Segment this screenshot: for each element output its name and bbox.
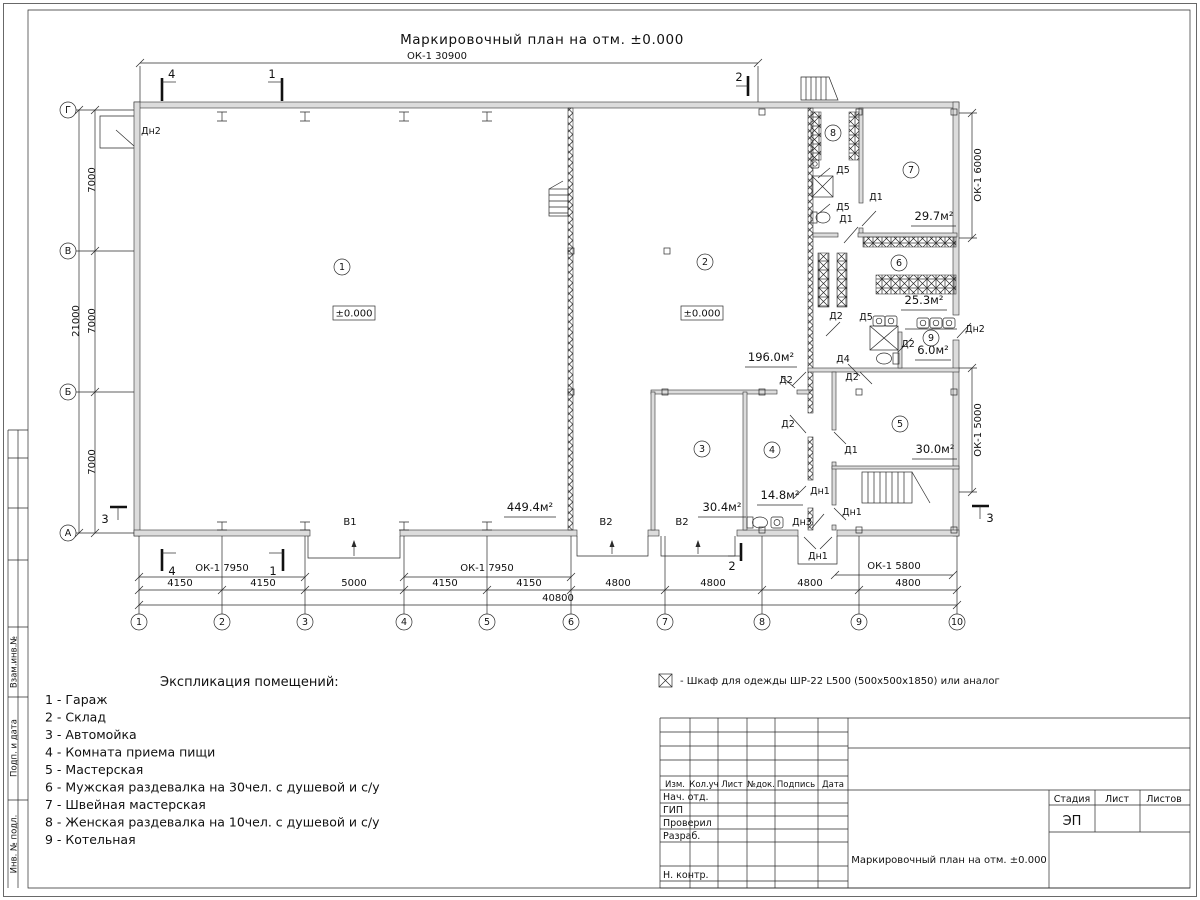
side-label-inv: Инв. № подл. (10, 815, 20, 874)
door-label: Д1 (844, 445, 857, 456)
stage-header: Листов (1146, 794, 1182, 805)
title-block-headers: Изм. Кол.уч Лист №док. Подпись Дата (665, 780, 844, 790)
note-text: - Шкаф для одежды ШР-22 L500 (500x500x18… (680, 676, 1000, 687)
axis-label: 5 (484, 617, 490, 628)
section-mark-label: 3 (986, 511, 993, 525)
dim-label: 7000 (87, 449, 98, 474)
dim-label: ОК-1 7950 (460, 563, 514, 574)
entry-porch (100, 116, 134, 148)
legend-item: 1 - Гараж (45, 692, 108, 707)
axis-label: Б (65, 387, 72, 398)
dim-label: 4800 (797, 578, 822, 589)
legend-item: 2 - Склад (45, 710, 106, 725)
door-label: Д5 (836, 165, 849, 176)
axis-label: 2 (219, 617, 225, 628)
plan-title: Маркировочный план на отм. ±0.000 (400, 32, 684, 48)
dim-label: ОК-1 5000 (973, 403, 984, 457)
axis-label: 3 (302, 617, 308, 628)
area-label: 29.7м² (915, 209, 954, 223)
dim-label: 4150 (516, 578, 541, 589)
dimension-labels: ОК-1 30900 ОК-1 7950 ОК-1 7950 ОК-1 5800… (71, 51, 984, 604)
dim-label: 4800 (605, 578, 630, 589)
area-label: 14.8м² (761, 488, 800, 502)
stamp-row: Н. контр. (663, 870, 709, 881)
door-label: Д2 (845, 372, 858, 383)
dimension-ticks (75, 59, 976, 609)
area-label: 30.0м² (916, 442, 955, 456)
dim-label: 4800 (700, 578, 725, 589)
dim-label: 40800 (542, 593, 574, 604)
door-label: Дн1 (810, 486, 830, 497)
door-label: Д1 (869, 192, 882, 203)
dim-label: 7000 (87, 308, 98, 333)
legend-item: 9 - Котельная (45, 832, 136, 847)
axis-label: Г (65, 105, 71, 116)
stamp-col: №док. (747, 780, 775, 790)
room-number: 2 (702, 257, 708, 268)
stamp-row: ГИП (663, 805, 683, 816)
legend-item: 7 - Швейная мастерская (45, 797, 206, 812)
area-label: 449.4м² (507, 500, 553, 514)
dim-label: ОК-1 30900 (407, 51, 467, 62)
gate-label: В2 (599, 517, 612, 528)
section-mark-label: 1 (269, 564, 276, 578)
dim-label: 4150 (250, 578, 275, 589)
legend: Экспликация помещений: 1 - Гараж 2 - Скл… (45, 675, 380, 847)
stage-header: Стадия (1054, 794, 1090, 805)
sheet-frame: Взам.инв.№ Подп. и дата Инв. № подл. (4, 4, 1197, 897)
elevation-label: ±0.000 (335, 309, 372, 320)
dim-label: 21000 (71, 305, 82, 337)
room-number: 5 (897, 419, 903, 430)
legend-item: 6 - Мужская раздевалка на 30чел. с душев… (45, 780, 380, 795)
stamp-col: Дата (822, 780, 844, 790)
section-mark-label: 3 (101, 512, 108, 526)
exterior-stair-symbol (801, 77, 838, 100)
section-mark-label: 4 (168, 67, 175, 81)
title-block: Изм. Кол.уч Лист №док. Подпись Дата Нач.… (660, 718, 1190, 888)
plan-canvas: Взам.инв.№ Подп. и дата Инв. № подл. Мар… (0, 0, 1200, 900)
door-label: Д2 (781, 419, 794, 430)
axis-bubbles-bottom: 1 2 3 4 5 6 7 8 9 10 (131, 614, 965, 630)
axis-label: 6 (568, 617, 574, 628)
gate-label: В1 (343, 517, 356, 528)
legend-item: 8 - Женская раздевалка на 10чел. с душев… (45, 815, 380, 830)
door-label: Д4 (836, 354, 849, 365)
axis-label: 7 (662, 617, 668, 628)
section-mark-label: 4 (168, 564, 175, 578)
legend-item: 5 - Мастерская (45, 762, 143, 777)
area-label: 6.0м² (917, 343, 949, 357)
door-label: Д2 (779, 375, 792, 386)
legend-item: 4 - Комната приема пищи (45, 745, 215, 760)
side-label-podp: Подп. и дата (10, 719, 20, 777)
stage-value: ЭП (1063, 814, 1082, 829)
door-label: Дн1 (808, 551, 828, 562)
dim-label: ОК-1 7950 (195, 563, 249, 574)
room-number: 4 (769, 445, 775, 456)
dim-label: ОК-1 6000 (973, 148, 984, 202)
legend-title: Экспликация помещений: (160, 675, 339, 690)
axis-label: 9 (856, 617, 862, 628)
gate-v2 (661, 536, 735, 556)
legend-item: 3 - Автомойка (45, 727, 137, 742)
locker-note: - Шкаф для одежды ШР-22 L500 (500x500x18… (659, 674, 1000, 687)
room-number: 8 (830, 128, 836, 139)
door-label: Дн3 (792, 517, 812, 528)
section-mark-label: 1 (268, 67, 275, 81)
dim-label: ОК-1 5800 (867, 561, 921, 572)
elevation-marks: ±0.000 ±0.000 (333, 306, 723, 320)
side-label-vzam: Взам.инв.№ (10, 636, 20, 688)
stamp-col: Изм. (665, 780, 685, 790)
axis-label: 10 (951, 617, 963, 628)
stamp-row: Проверил (663, 818, 712, 829)
toilet-symbol (877, 353, 900, 364)
dim-label: 4150 (167, 578, 192, 589)
stamp-col: Кол.уч (689, 780, 718, 790)
area-label: 30.4м² (703, 500, 742, 514)
toilet-symbol (811, 212, 830, 223)
washbasin-row (873, 316, 957, 329)
axis-label: 4 (401, 617, 407, 628)
room-number: 7 (908, 165, 914, 176)
shower-cabin (812, 176, 833, 197)
door-label: Д5 (859, 312, 872, 323)
area-label: 196.0м² (748, 350, 794, 364)
door-label: Д5 (836, 202, 849, 213)
door-label: Д2 (829, 311, 842, 322)
title-block-roles: Нач. отд. ГИП Проверил Разраб. Н. контр. (663, 792, 712, 881)
door-label: Д1 (839, 214, 852, 225)
drawing-sheet: Взам.инв.№ Подп. и дата Инв. № подл. Мар… (0, 0, 1200, 900)
door-label: Д2 (901, 339, 914, 350)
door-label: Дн2 (965, 324, 985, 335)
elevation-label: ±0.000 (683, 309, 720, 320)
stamp-col: Подпись (777, 780, 815, 790)
axis-label: 8 (759, 617, 765, 628)
gate-label: В2 (675, 517, 688, 528)
title-block-stage: Стадия Лист Листов ЭП (1054, 794, 1182, 829)
room-number: 3 (699, 444, 705, 455)
gate-v1 (308, 536, 400, 558)
interior-walls (568, 108, 959, 530)
area-label: 25.3м² (905, 293, 944, 307)
dim-label: 4800 (895, 578, 920, 589)
dim-label: 4150 (432, 578, 457, 589)
axis-label: В (65, 246, 72, 257)
dim-label: 5000 (341, 578, 366, 589)
stamp-row: Разраб. (663, 831, 700, 842)
stair-symbol (862, 472, 930, 503)
dimension-lines (79, 63, 972, 605)
stage-header: Лист (1105, 794, 1130, 805)
stamp-row: Нач. отд. (663, 792, 709, 803)
section-mark-label: 2 (735, 70, 742, 84)
door-label: Дн2 (141, 126, 161, 137)
doc-title: Маркировочный план на отм. ±0.000 (851, 855, 1047, 866)
shower-cabin (870, 326, 898, 350)
room-number: 6 (896, 258, 902, 269)
room-number: 1 (339, 262, 345, 273)
ladder-symbol (549, 181, 568, 216)
axis-label: А (65, 528, 72, 539)
dim-label: 7000 (87, 167, 98, 192)
door-labels: Дн2 Д5 Д5 Д1 Д1 Д2 Д2 Д2 Д5 Д2 Д4 Д2 Д1 … (141, 126, 985, 562)
axis-label: 1 (136, 617, 142, 628)
section-mark-label: 2 (728, 559, 735, 573)
stamp-col: Лист (721, 780, 743, 790)
locker-symbol (659, 674, 672, 687)
sink-symbol (771, 517, 783, 528)
door-label: Дн1 (842, 507, 862, 518)
toilet-symbol (747, 517, 768, 528)
gate-v2 (577, 536, 648, 556)
